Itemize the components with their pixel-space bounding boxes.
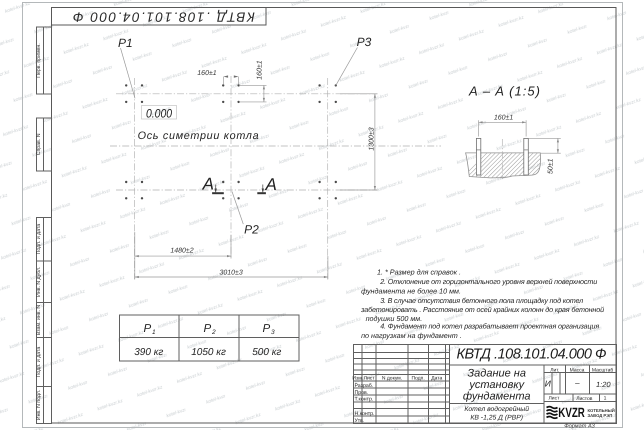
- svg-text:Дата: Дата: [431, 376, 442, 382]
- svg-text:3010±3: 3010±3: [219, 270, 242, 277]
- svg-text:P3: P3: [357, 35, 372, 49]
- svg-text:Лит.: Лит.: [550, 367, 559, 373]
- svg-text:забетонировать . Расстояние от: забетонировать . Расстояние от осей край…: [360, 305, 604, 314]
- svg-text:A: A: [202, 175, 214, 194]
- svg-text:P1: P1: [118, 36, 133, 50]
- svg-text:Формат А3: Формат А3: [564, 424, 595, 430]
- svg-text:160±1: 160±1: [494, 115, 514, 122]
- svg-text:P: P: [204, 323, 212, 335]
- svg-text:P: P: [144, 323, 152, 335]
- svg-text:2: 2: [211, 329, 216, 336]
- svg-text:KVZR: KVZR: [558, 405, 585, 420]
- svg-text:160±1: 160±1: [197, 70, 217, 77]
- svg-text:И: И: [545, 379, 552, 389]
- svg-text:1: 1: [152, 329, 156, 336]
- svg-text:1050 кг: 1050 кг: [191, 347, 226, 358]
- svg-text:Утв.: Утв.: [355, 418, 365, 424]
- svg-text:3: 3: [271, 329, 275, 336]
- svg-text:50±1: 50±1: [548, 158, 555, 174]
- svg-text:Лист: Лист: [549, 396, 561, 402]
- svg-text:1:20: 1:20: [596, 380, 611, 389]
- svg-text:Ось симетрии котла: Ось симетрии котла: [138, 130, 259, 142]
- svg-text:Подп. и дата: Подп. и дата: [36, 347, 42, 378]
- svg-text:0.000: 0.000: [146, 106, 172, 120]
- svg-text:Котел водогрейный: Котел водогрейный: [464, 405, 529, 413]
- svg-text:Листов: Листов: [576, 396, 593, 402]
- svg-text:установку: установку: [468, 379, 525, 391]
- svg-text:3. В случае отсутствия бетонно: 3. В случае отсутствия бетонного пола пл…: [380, 296, 583, 305]
- svg-text:по нагрузкам на фундамент .: по нагрузкам на фундамент .: [361, 331, 462, 340]
- svg-text:Лист: Лист: [364, 376, 376, 382]
- svg-text:P2: P2: [244, 222, 259, 236]
- svg-text:фундамента: фундамента: [463, 391, 531, 403]
- svg-text:Изм.: Изм.: [352, 376, 363, 382]
- svg-text:Задание на: Задание на: [467, 368, 526, 380]
- svg-text:N докум.: N докум.: [382, 376, 402, 382]
- svg-text:1480±2: 1480±2: [170, 248, 193, 255]
- svg-text:A: A: [265, 175, 277, 194]
- svg-text:КВТД .108.101.04.000 Ф: КВТД .108.101.04.000 Ф: [457, 347, 607, 363]
- svg-text:Инв. N подл.: Инв. N подл.: [36, 390, 42, 421]
- svg-text:1: 1: [604, 396, 607, 402]
- svg-text:A – A (1:5): A – A (1:5): [468, 84, 540, 99]
- svg-text:P: P: [263, 323, 271, 335]
- svg-text:Подп. и дата: Подп. и дата: [36, 224, 42, 255]
- svg-text:Подп.: Подп.: [411, 376, 424, 382]
- svg-text:Справ. N: Справ. N: [36, 133, 42, 155]
- svg-text:Разраб.: Разраб.: [355, 383, 374, 389]
- svg-text:КВ -1,25 Д (РВР): КВ -1,25 Д (РВР): [470, 414, 523, 421]
- svg-text:390 кг: 390 кг: [134, 347, 163, 358]
- svg-text:ЗАВОД РЭП: ЗАВОД РЭП: [588, 413, 613, 418]
- svg-text:500 кг: 500 кг: [252, 347, 281, 358]
- svg-text:Взам. инв. N: Взам. инв. N: [36, 305, 42, 336]
- svg-text:Пров.: Пров.: [355, 390, 369, 396]
- svg-text:–: –: [575, 379, 580, 388]
- svg-text:Н.контр.: Н.контр.: [355, 411, 375, 417]
- svg-text:Масса: Масса: [570, 367, 585, 373]
- svg-text:1300±3: 1300±3: [369, 127, 376, 150]
- svg-text:фундамента не более 10 мм.: фундамента не более 10 мм.: [361, 287, 461, 296]
- svg-text:1. * Размер для справок .: 1. * Размер для справок .: [377, 267, 461, 276]
- svg-text:160±1: 160±1: [257, 60, 264, 80]
- svg-text:2. Отклонение от горизонтально: 2. Отклонение от горизонтального уровня …: [379, 277, 597, 286]
- svg-text:Т.контр.: Т.контр.: [355, 397, 374, 403]
- svg-text:Перв. примен.: Перв. примен.: [36, 43, 42, 78]
- svg-text:4. Фундамент под котел разраба: 4. Фундамент под котел разрабатывает про…: [380, 322, 599, 331]
- svg-text:Масштаб: Масштаб: [592, 367, 614, 373]
- svg-text:Инв. N дубл.: Инв. N дубл.: [36, 267, 42, 297]
